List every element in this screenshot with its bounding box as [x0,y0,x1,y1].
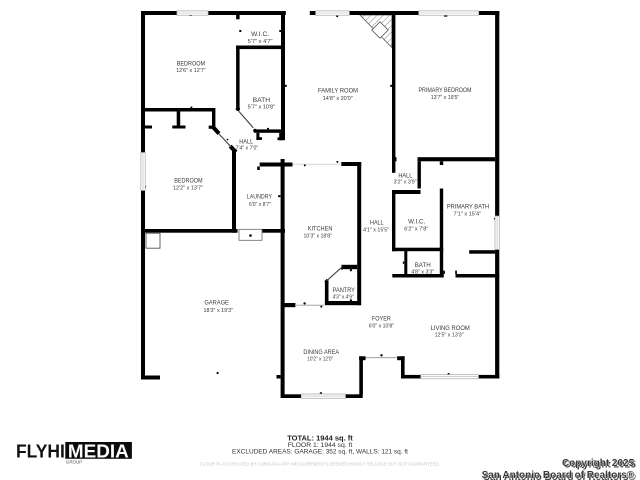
svg-text:4'1" x 15'5": 4'1" x 15'5" [363,228,389,234]
svg-text:HALL: HALL [398,172,412,179]
svg-text:13'7" x 19'5": 13'7" x 19'5" [431,95,460,101]
svg-text:BEDROOM: BEDROOM [174,178,202,185]
svg-text:6'0" x 10'8": 6'0" x 10'8" [369,324,394,330]
svg-text:Copyright 2025: Copyright 2025 [562,458,635,469]
svg-text:San Antonio Board of Realtors®: San Antonio Board of Realtors® [482,470,635,480]
svg-text:LIVING ROOM: LIVING ROOM [431,325,470,332]
svg-text:LAUNDRY: LAUNDRY [247,194,272,201]
svg-text:14'8" x 20'0": 14'8" x 20'0" [323,96,353,102]
svg-text:PANTRY: PANTRY [333,287,355,294]
svg-text:FAMILY ROOM: FAMILY ROOM [318,88,358,95]
svg-text:FOYER: FOYER [372,315,391,322]
svg-text:10'3" x 18'8": 10'3" x 18'8" [304,233,333,239]
svg-text:BATH: BATH [253,97,271,104]
svg-text:W.I.C.: W.I.C. [251,31,269,38]
svg-text:FLOOR PLAN CREATED BY CUBICASA: FLOOR PLAN CREATED BY CUBICASA APP. MEAS… [200,462,440,468]
svg-text:12'2" x 13'7": 12'2" x 13'7" [173,186,203,192]
svg-text:HALL: HALL [239,138,253,145]
svg-text:6'0" x 8'7": 6'0" x 8'7" [249,202,271,208]
svg-text:10'2" x 12'0": 10'2" x 12'0" [307,357,333,363]
svg-text:GROUP: GROUP [66,459,82,464]
svg-text:5'7" x 4'7": 5'7" x 4'7" [248,39,273,45]
svg-text:DINING AREA: DINING AREA [303,349,339,356]
svg-text:KITCHEN: KITCHEN [308,225,333,232]
svg-text:18'3" x 19'3": 18'3" x 19'3" [204,308,234,314]
svg-text:7'1" x 15'4": 7'1" x 15'4" [454,211,482,217]
svg-text:EXCLUDED AREAS: GARAGE: 352 sq: EXCLUDED AREAS: GARAGE: 352 sq. ft, WALL… [232,448,408,455]
svg-text:4'3" x 4'9": 4'3" x 4'9" [333,294,354,300]
svg-text:HALL: HALL [370,219,384,226]
svg-text:6'2" x 7'8": 6'2" x 7'8" [404,226,428,232]
svg-text:MEDIA: MEDIA [68,440,129,461]
svg-text:PRIMARY BATH: PRIMARY BATH [447,203,489,210]
svg-text:5'7" x 10'8": 5'7" x 10'8" [248,104,276,110]
svg-text:GARAGE: GARAGE [204,299,229,306]
svg-text:BEDROOM: BEDROOM [177,60,205,67]
svg-text:W.I.C.: W.I.C. [408,219,425,226]
svg-text:FLYHI: FLYHI [16,441,65,462]
svg-text:3'2" x 3'9": 3'2" x 3'9" [394,180,417,186]
svg-text:12'6" x 12'7": 12'6" x 12'7" [176,68,205,74]
svg-text:12'5" x 13'3": 12'5" x 13'3" [435,333,464,339]
svg-text:PRIMARY BEDROOM: PRIMARY BEDROOM [419,87,472,94]
svg-text:7'4" x 7'0": 7'4" x 7'0" [236,145,259,151]
svg-text:4'8" x 3'3": 4'8" x 3'3" [411,269,434,275]
svg-text:BATH: BATH [415,262,431,269]
